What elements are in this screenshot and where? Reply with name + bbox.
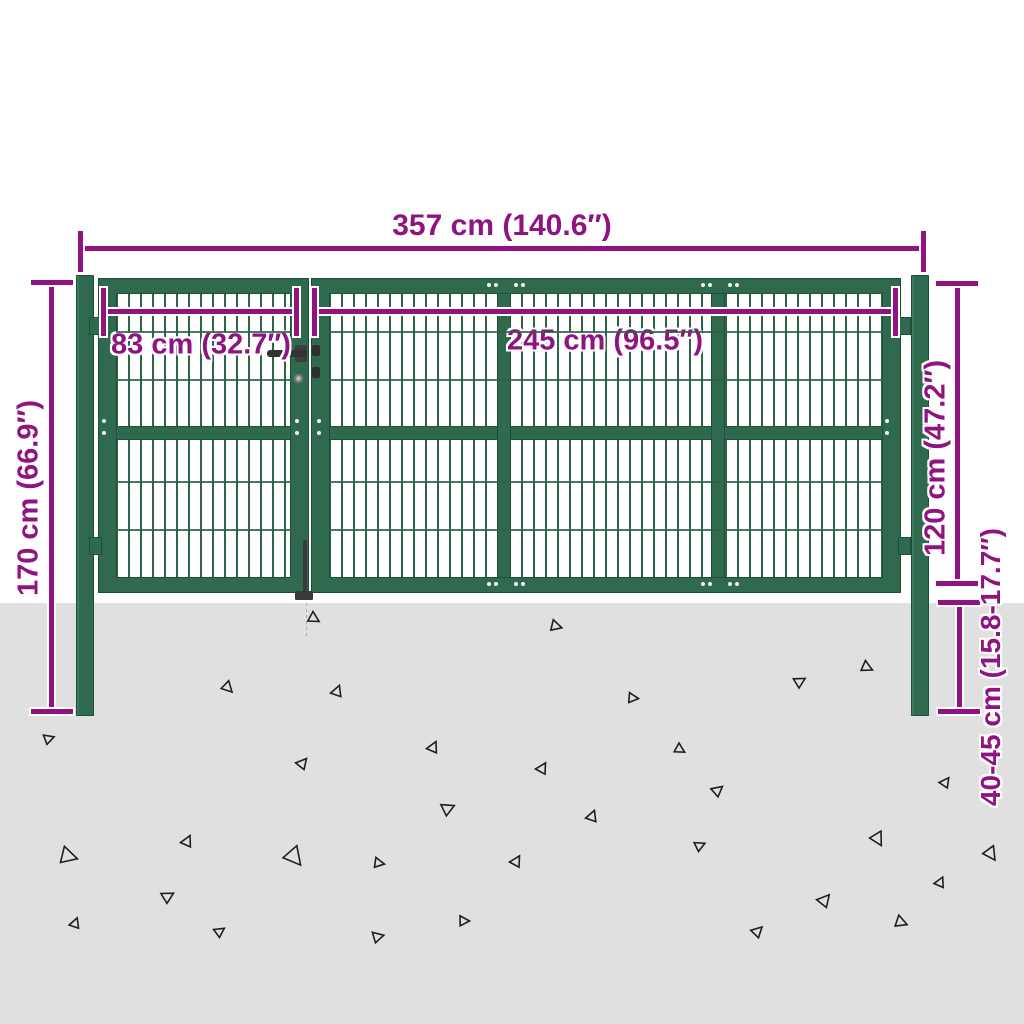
drop-bolt-rod — [303, 540, 307, 592]
bolt-hole-dot — [885, 431, 889, 435]
mesh-wire — [116, 529, 291, 531]
bolt-hole-dot — [708, 582, 712, 586]
bolt-hole-dot — [317, 419, 321, 423]
dim-large-gate-tick-right — [893, 288, 898, 336]
latch-bracket — [312, 367, 320, 378]
hinge — [90, 318, 101, 334]
bolt-hole-dot — [728, 582, 732, 586]
drop-bolt-ground-plate — [295, 591, 313, 600]
dim-large-gate-line — [315, 309, 896, 314]
dim-small-gate-tick-right — [294, 288, 299, 336]
hinge — [899, 538, 910, 554]
dim-total-width-label: 357 cm (140.6″) — [392, 211, 612, 241]
lock-cylinder — [294, 374, 303, 383]
dim-total-width-line — [80, 246, 925, 251]
dim-total-width-tick-right — [921, 231, 926, 272]
dim-underground-tick-bottom — [938, 709, 980, 714]
dim-post-height-label: 170 cm (66.9″) — [15, 400, 44, 596]
dim-small-gate-tick-left — [101, 288, 106, 336]
bolt-hole-dot — [708, 283, 712, 287]
mesh-wire — [116, 331, 291, 333]
dim-panel-height-label: 120 cm (47.2″) — [922, 360, 951, 556]
hinge — [90, 538, 101, 554]
bolt-hole-dot — [295, 419, 299, 423]
left-fence-post — [76, 275, 94, 716]
bolt-hole-dot — [494, 283, 498, 287]
dim-underground-label: 40-45 cm (15.8-17.7″) — [977, 528, 1005, 806]
dim-small-gate-line — [104, 309, 297, 314]
dim-panel-height-line — [955, 284, 960, 584]
bolt-hole-dot — [487, 582, 491, 586]
bolt-hole-dot — [701, 283, 705, 287]
mesh-wire — [329, 529, 883, 531]
dim-panel-height-tick-bottom — [936, 581, 978, 586]
dim-post-height-tick-top — [31, 280, 73, 285]
dim-underground-line — [957, 602, 962, 712]
dim-large-gate-tick-left — [312, 288, 317, 336]
bolt-hole-dot — [494, 582, 498, 586]
bolt-hole-dot — [514, 283, 518, 287]
drop-bolt-shadow — [306, 603, 307, 637]
bolt-hole-dot — [701, 582, 705, 586]
small-gate-frame — [99, 279, 308, 592]
dim-total-width-tick-left — [78, 231, 83, 272]
bolt-hole-dot — [521, 582, 525, 586]
bolt-hole-dot — [735, 582, 739, 586]
dim-panel-height-tick-top — [936, 281, 978, 286]
bolt-hole-dot — [295, 431, 299, 435]
mesh-wire — [116, 481, 291, 483]
ground — [0, 603, 1024, 1024]
mesh-wire — [116, 379, 291, 381]
dim-post-height-tick-bottom — [31, 709, 73, 714]
mesh-wire — [329, 331, 883, 333]
fence-gate-dimension-diagram: 357 cm (140.6″) 83 cm (32.7″) 245 cm (96… — [0, 0, 1024, 1024]
bolt-hole-dot — [514, 582, 518, 586]
bolt-hole-dot — [317, 431, 321, 435]
mesh-wire — [329, 379, 883, 381]
bolt-hole-dot — [487, 283, 491, 287]
hinge — [899, 318, 910, 334]
bolt-hole-dot — [102, 431, 106, 435]
dim-small-gate-label: 83 cm (32.7″) — [111, 331, 291, 360]
bolt-hole-dot — [735, 283, 739, 287]
mesh-wire — [329, 481, 883, 483]
bolt-hole-dot — [102, 419, 106, 423]
bolt-hole-dot — [885, 419, 889, 423]
dim-underground-tick-top — [938, 600, 980, 605]
bolt-hole-dot — [521, 283, 525, 287]
dim-post-height-line — [49, 282, 54, 713]
latch-bracket — [312, 345, 320, 356]
bolt-hole-dot — [728, 283, 732, 287]
